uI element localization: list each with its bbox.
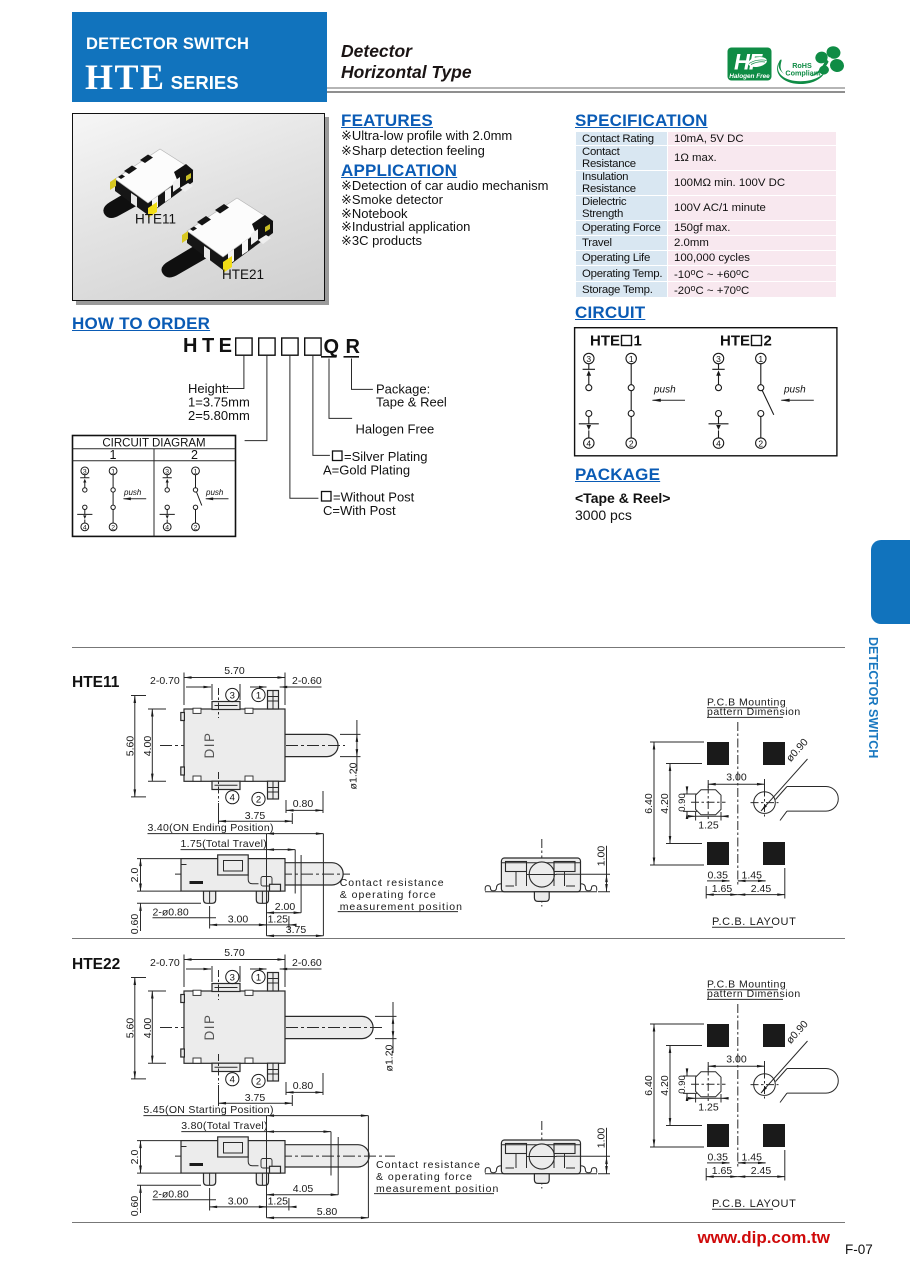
svg-text:1: 1 bbox=[629, 354, 634, 364]
svg-text:1: 1 bbox=[111, 469, 115, 476]
svg-text:2: 2 bbox=[191, 448, 198, 462]
svg-text:push: push bbox=[653, 385, 676, 396]
svg-text:QR: QR bbox=[324, 336, 367, 358]
svg-text:3: 3 bbox=[83, 469, 87, 476]
svg-text:4: 4 bbox=[83, 525, 87, 532]
svg-text:Contact resistance: Contact resistance bbox=[340, 877, 445, 889]
svg-text:& operating force: & operating force bbox=[376, 1171, 473, 1183]
svg-text:HTE: HTE bbox=[183, 335, 237, 357]
svg-text:3.75: 3.75 bbox=[286, 924, 307, 936]
svg-text:2: 2 bbox=[758, 439, 763, 449]
svg-text:A=Gold Plating: A=Gold Plating bbox=[323, 462, 410, 477]
svg-text:push: push bbox=[205, 488, 224, 497]
svg-text:Halogen Free: Halogen Free bbox=[356, 422, 435, 437]
svg-text:ø1.20: ø1.20 bbox=[384, 1044, 396, 1071]
svg-text:4: 4 bbox=[165, 525, 169, 532]
svg-text:3.80(Total Travel): 3.80(Total Travel) bbox=[181, 1120, 268, 1132]
svg-text:Tape & Reel: Tape & Reel bbox=[376, 394, 447, 409]
svg-text:2=5.80mm: 2=5.80mm bbox=[188, 408, 250, 423]
svg-text:3.40(ON Ending Position): 3.40(ON Ending Position) bbox=[148, 822, 274, 834]
svg-text:1: 1 bbox=[634, 333, 642, 350]
svg-text:2: 2 bbox=[111, 525, 115, 532]
svg-text:2: 2 bbox=[194, 525, 198, 532]
svg-text:push: push bbox=[783, 385, 806, 396]
svg-text:HTE11: HTE11 bbox=[135, 212, 176, 227]
svg-text:2: 2 bbox=[629, 439, 634, 449]
svg-text:1: 1 bbox=[758, 354, 763, 364]
svg-text:ø1.20: ø1.20 bbox=[348, 762, 360, 789]
svg-text:4.05: 4.05 bbox=[293, 1183, 314, 1195]
svg-text:2.00: 2.00 bbox=[275, 901, 296, 913]
svg-text:3: 3 bbox=[165, 469, 169, 476]
svg-text:3: 3 bbox=[586, 354, 591, 364]
svg-text:HTE21: HTE21 bbox=[222, 267, 264, 282]
svg-text:5.45(ON Starting Position): 5.45(ON Starting Position) bbox=[143, 1104, 273, 1116]
svg-text:Contact resistance: Contact resistance bbox=[376, 1159, 481, 1171]
svg-text:push: push bbox=[123, 488, 142, 497]
svg-text:& operating force: & operating force bbox=[340, 889, 437, 901]
svg-text:measurement position: measurement position bbox=[340, 901, 463, 913]
svg-text:1.75(Total Travel): 1.75(Total Travel) bbox=[181, 838, 268, 850]
svg-text:1: 1 bbox=[194, 469, 198, 476]
svg-text:HTE: HTE bbox=[590, 333, 620, 350]
svg-text:4: 4 bbox=[586, 439, 591, 449]
svg-text:1: 1 bbox=[110, 448, 117, 462]
svg-text:C=With Post: C=With Post bbox=[323, 503, 396, 518]
svg-text:HTE: HTE bbox=[720, 333, 750, 350]
svg-text:5.80: 5.80 bbox=[317, 1206, 338, 1218]
svg-text:measurement position: measurement position bbox=[376, 1183, 499, 1195]
svg-text:2: 2 bbox=[764, 333, 772, 350]
